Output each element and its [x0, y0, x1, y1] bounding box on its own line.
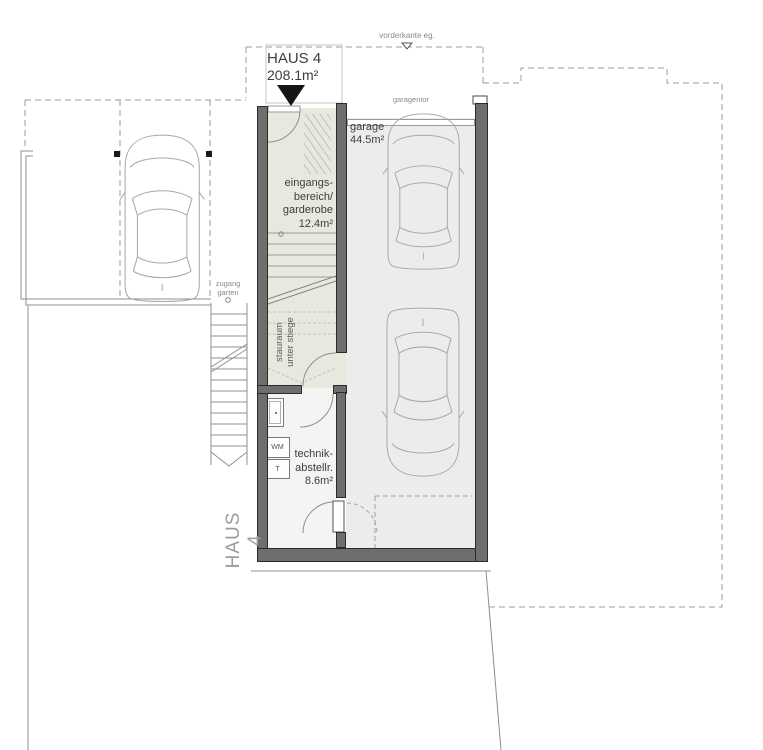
plan-title: HAUS 4 — [267, 50, 321, 67]
wall-technik-garage-a — [336, 392, 346, 498]
car-garage-top — [383, 114, 464, 269]
car-parking-spot — [120, 135, 204, 301]
technik-room-label: technik- abstellr. 8.6m² — [253, 448, 333, 489]
technik-door-swing-alt — [347, 503, 377, 533]
house-side-label: HAUS 4 — [223, 509, 243, 571]
garagentor-label: garagentor — [381, 95, 441, 104]
post-marker-left — [114, 151, 120, 157]
garage-dashed-zone — [375, 496, 472, 548]
zugang-point-marker — [226, 298, 231, 303]
retaining-wall-inner — [26, 156, 211, 305]
wall-technik-garage-b — [336, 532, 346, 548]
entrance-door-leaf — [268, 106, 300, 112]
hall-garage-door-opening — [336, 353, 346, 385]
stairs-direction-arrow — [211, 452, 247, 466]
zugang-label: zugang garten — [198, 279, 258, 297]
stauraum-label: stauraum unter stiege — [274, 297, 300, 387]
wall-right — [475, 103, 488, 562]
wall-hall-garage — [336, 103, 347, 353]
level-marker-icon — [402, 43, 412, 49]
technik-garage-door-leaf — [333, 501, 344, 532]
neighbor-house-outline — [483, 68, 722, 607]
post-marker-right — [206, 151, 212, 157]
technik-door-swing — [303, 502, 334, 533]
hall-garage-door-swing — [303, 353, 336, 386]
stair-post-marker — [279, 232, 283, 236]
vorderkante-label: vorderkante eg. — [366, 31, 448, 40]
wall-bottom — [257, 548, 488, 562]
eingang-room-label: eingangs- bereich/ garderobe 12.4m² — [252, 177, 333, 231]
entrance-arrow-icon — [277, 85, 305, 106]
entrance-door-swing — [268, 110, 300, 142]
plot-line-diagonal — [486, 571, 501, 750]
garage-room-label: garage 44.5m² — [350, 121, 384, 146]
floor-plan-canvas: WM T — [0, 0, 763, 750]
hall-technik-door-swing — [300, 394, 333, 427]
car-garage-bottom — [382, 308, 464, 476]
site-linework — [0, 0, 763, 750]
retaining-wall-outer — [21, 151, 211, 299]
outdoor-stairs — [211, 303, 247, 466]
plan-total-area: 208.1m² — [267, 67, 318, 83]
